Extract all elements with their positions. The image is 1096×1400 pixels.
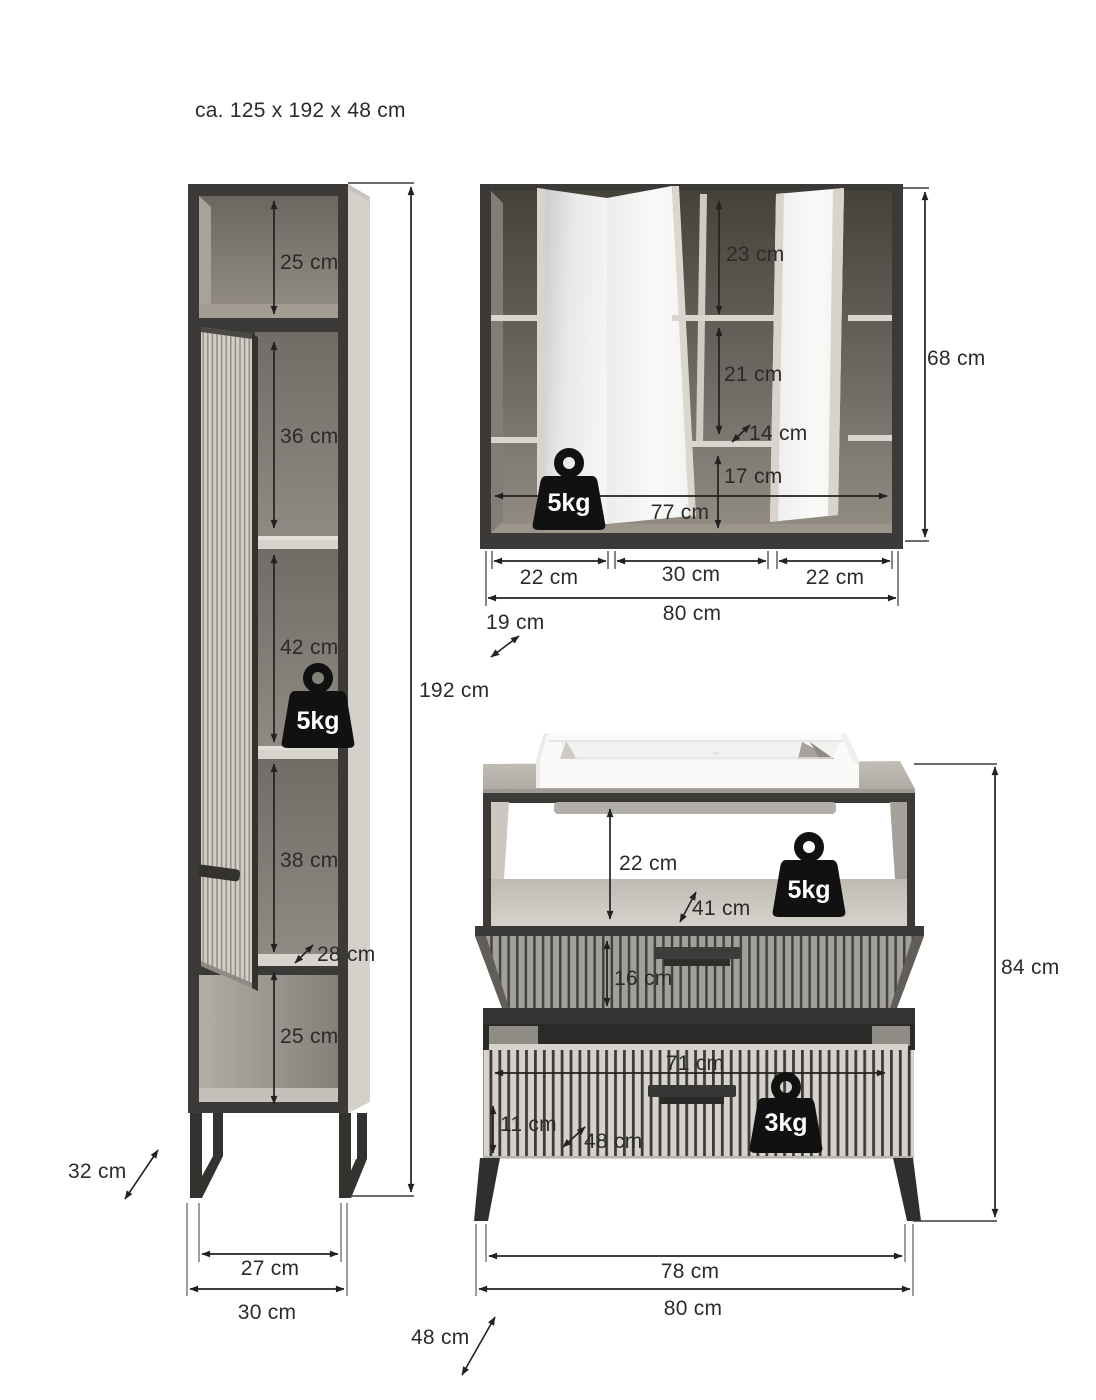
svg-text:5kg: 5kg: [296, 707, 339, 735]
svg-text:80 cm: 80 cm: [664, 1297, 722, 1320]
svg-text:30 cm: 30 cm: [238, 1301, 296, 1324]
svg-text:21 cm: 21 cm: [724, 363, 782, 386]
svg-text:71 cm: 71 cm: [666, 1052, 724, 1075]
svg-text:25 cm: 25 cm: [280, 1025, 338, 1048]
svg-text:14 cm: 14 cm: [749, 422, 807, 445]
svg-text:19 cm: 19 cm: [486, 611, 544, 634]
svg-text:23 cm: 23 cm: [726, 243, 784, 266]
svg-text:5kg: 5kg: [547, 489, 590, 517]
svg-text:22 cm: 22 cm: [619, 852, 677, 875]
svg-text:27 cm: 27 cm: [241, 1257, 299, 1280]
svg-text:80 cm: 80 cm: [663, 602, 721, 625]
svg-text:5kg: 5kg: [787, 876, 830, 904]
svg-text:22 cm: 22 cm: [806, 566, 864, 589]
svg-text:48 cm: 48 cm: [584, 1130, 642, 1153]
svg-text:192 cm: 192 cm: [419, 679, 489, 702]
svg-text:32 cm: 32 cm: [68, 1160, 126, 1183]
svg-text:41 cm: 41 cm: [692, 897, 750, 920]
svg-text:78 cm: 78 cm: [661, 1260, 719, 1283]
svg-text:25 cm: 25 cm: [280, 251, 338, 274]
svg-text:42 cm: 42 cm: [280, 636, 338, 659]
svg-text:38 cm: 38 cm: [280, 849, 338, 872]
svg-text:22 cm: 22 cm: [520, 566, 578, 589]
svg-text:16 cm: 16 cm: [614, 967, 672, 990]
svg-text:30 cm: 30 cm: [662, 563, 720, 586]
svg-text:28 cm: 28 cm: [317, 943, 375, 966]
svg-text:77 cm: 77 cm: [651, 501, 709, 524]
svg-text:17 cm: 17 cm: [724, 465, 782, 488]
svg-text:11 cm: 11 cm: [500, 1113, 557, 1136]
svg-text:68 cm: 68 cm: [927, 347, 985, 370]
svg-text:ca. 125 x 192 x 48 cm: ca. 125 x 192 x 48 cm: [195, 99, 406, 122]
svg-text:36 cm: 36 cm: [280, 425, 338, 448]
svg-text:84 cm: 84 cm: [1001, 956, 1059, 979]
svg-text:48 cm: 48 cm: [411, 1326, 469, 1349]
svg-text:3kg: 3kg: [764, 1109, 807, 1137]
